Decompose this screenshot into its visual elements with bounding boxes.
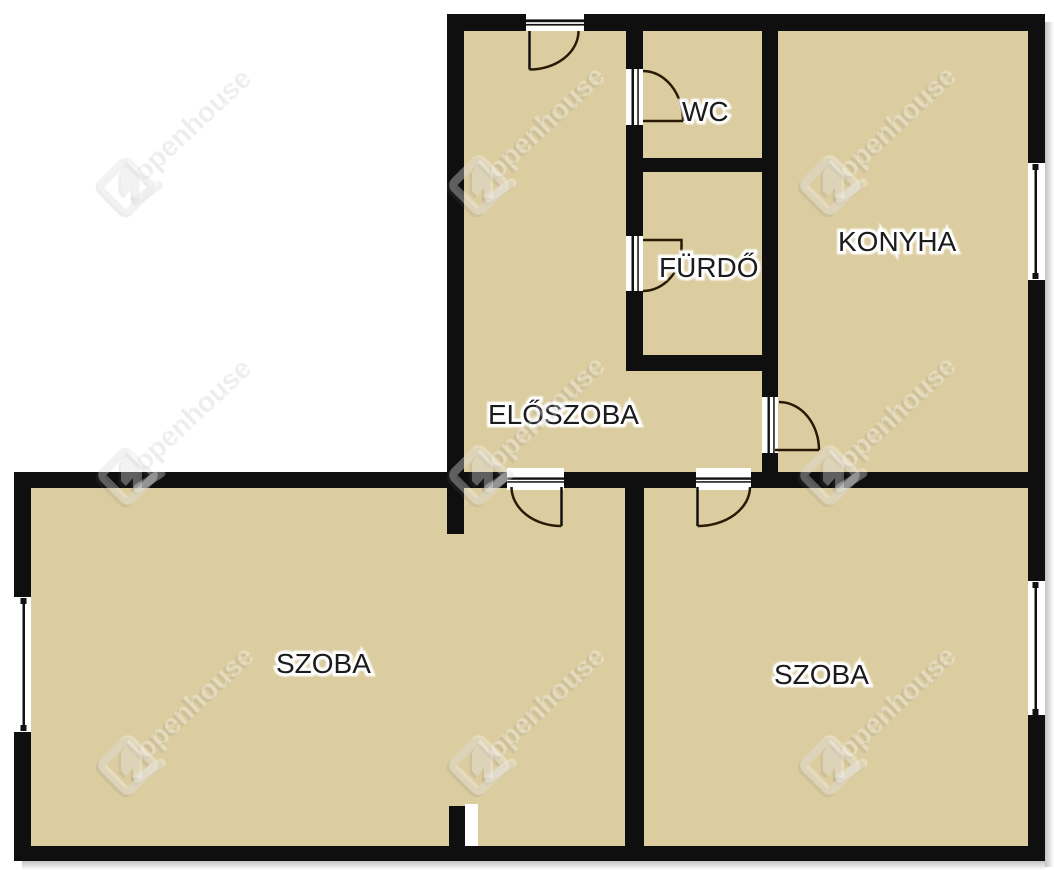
svg-text:FÜRDŐ: FÜRDŐ — [659, 252, 759, 283]
svg-text:WC: WC — [682, 96, 729, 127]
svg-text:SZOBA: SZOBA — [774, 659, 869, 690]
svg-text:SZOBA: SZOBA — [276, 648, 371, 679]
svg-text:KONYHA: KONYHA — [838, 226, 957, 257]
